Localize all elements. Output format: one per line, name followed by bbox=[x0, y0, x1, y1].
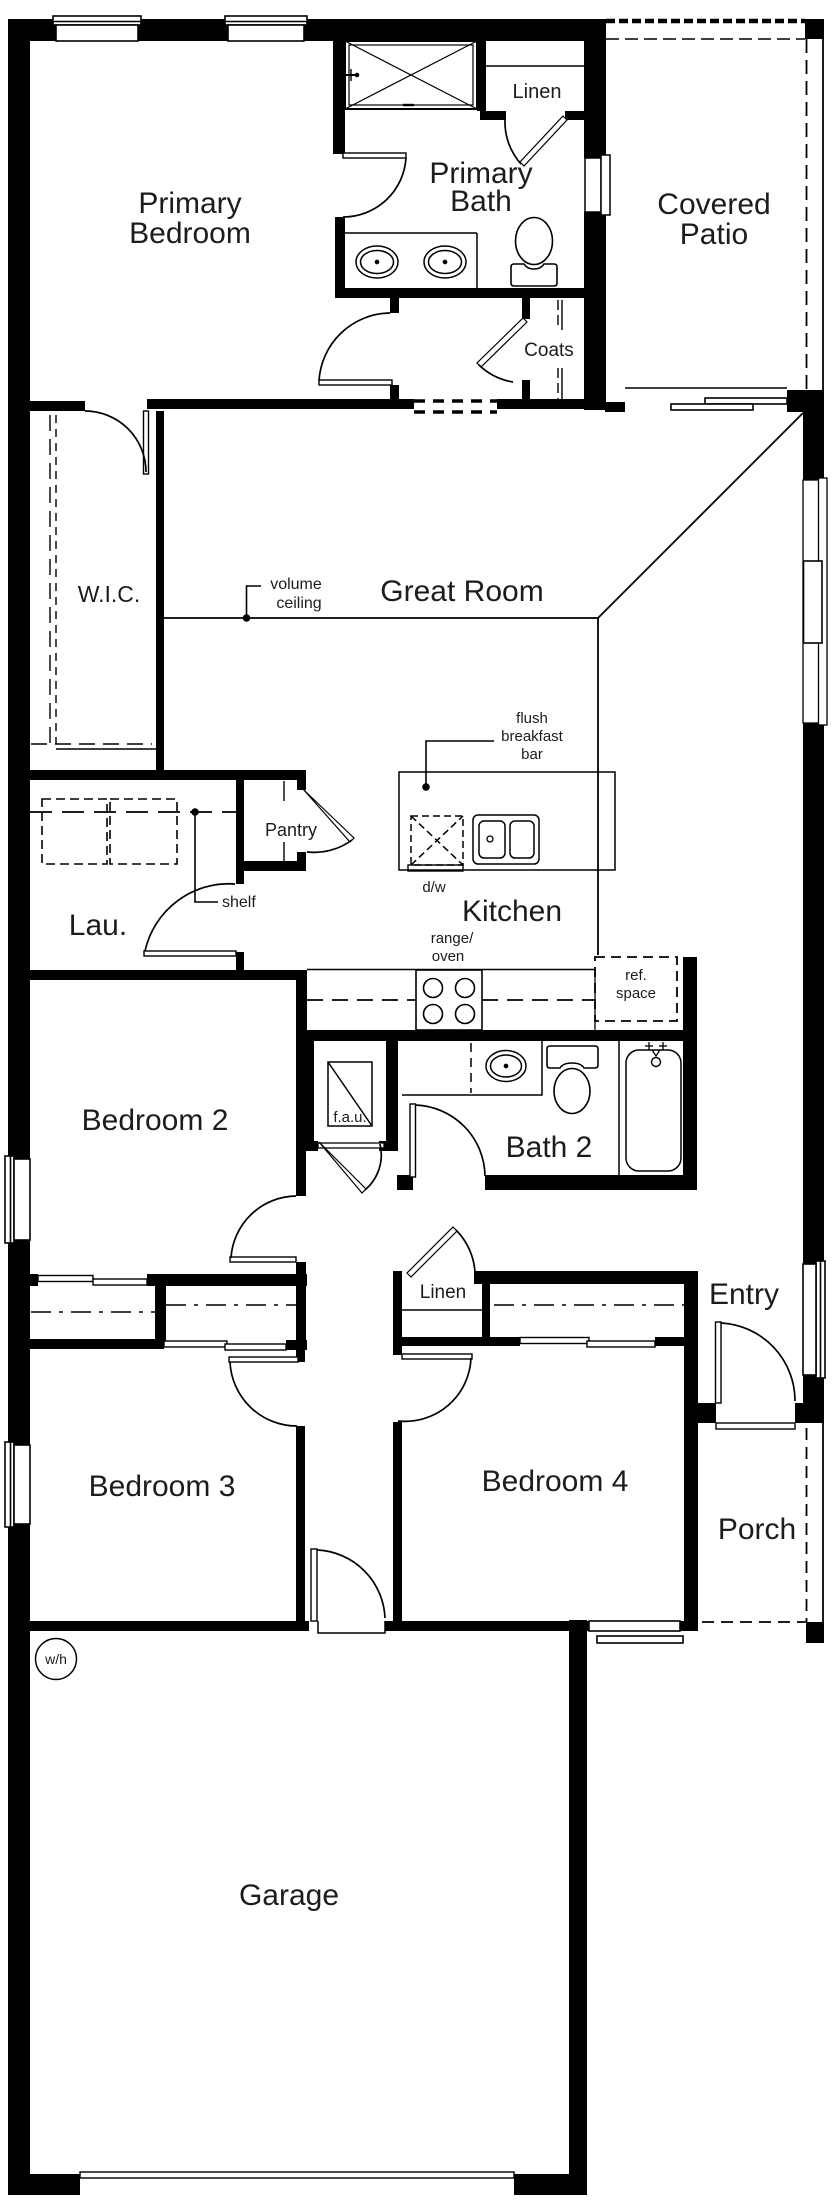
svg-text:Garage: Garage bbox=[239, 1879, 339, 1912]
svg-text:range/: range/ bbox=[431, 930, 474, 947]
svg-text:Coats: Coats bbox=[524, 340, 574, 361]
svg-text:volume: volume bbox=[270, 576, 322, 593]
svg-text:Bedroom 4: Bedroom 4 bbox=[482, 1465, 629, 1498]
svg-text:Linen: Linen bbox=[513, 81, 562, 103]
svg-text:Lau.: Lau. bbox=[69, 909, 127, 942]
svg-text:Bedroom: Bedroom bbox=[129, 217, 251, 250]
svg-text:shelf: shelf bbox=[222, 894, 256, 911]
svg-text:Covered: Covered bbox=[657, 188, 770, 221]
svg-text:Bath: Bath bbox=[450, 185, 512, 218]
svg-text:Kitchen: Kitchen bbox=[462, 895, 562, 928]
svg-text:space: space bbox=[616, 985, 656, 1002]
svg-text:W.I.C.: W.I.C. bbox=[78, 581, 141, 607]
svg-text:d/w: d/w bbox=[422, 879, 446, 896]
svg-text:Linen: Linen bbox=[420, 1282, 467, 1303]
svg-text:Patio: Patio bbox=[680, 218, 748, 251]
svg-text:oven: oven bbox=[432, 948, 465, 965]
svg-text:Bedroom 2: Bedroom 2 bbox=[82, 1104, 229, 1137]
svg-text:Entry: Entry bbox=[709, 1278, 779, 1311]
svg-text:Bedroom 3: Bedroom 3 bbox=[89, 1470, 236, 1503]
svg-text:w/h: w/h bbox=[44, 1651, 67, 1667]
svg-text:f.a.u.: f.a.u. bbox=[333, 1109, 366, 1126]
svg-text:Great Room: Great Room bbox=[380, 575, 543, 608]
svg-text:Pantry: Pantry bbox=[265, 820, 317, 840]
svg-text:Porch: Porch bbox=[718, 1513, 796, 1546]
svg-text:flush: flush bbox=[516, 710, 548, 727]
svg-text:Primary: Primary bbox=[138, 187, 241, 220]
svg-text:ref.: ref. bbox=[625, 967, 647, 984]
svg-text:Bath 2: Bath 2 bbox=[506, 1131, 593, 1164]
svg-text:ceiling: ceiling bbox=[276, 595, 321, 612]
svg-text:breakfast: breakfast bbox=[501, 728, 564, 745]
svg-text:bar: bar bbox=[521, 746, 543, 763]
